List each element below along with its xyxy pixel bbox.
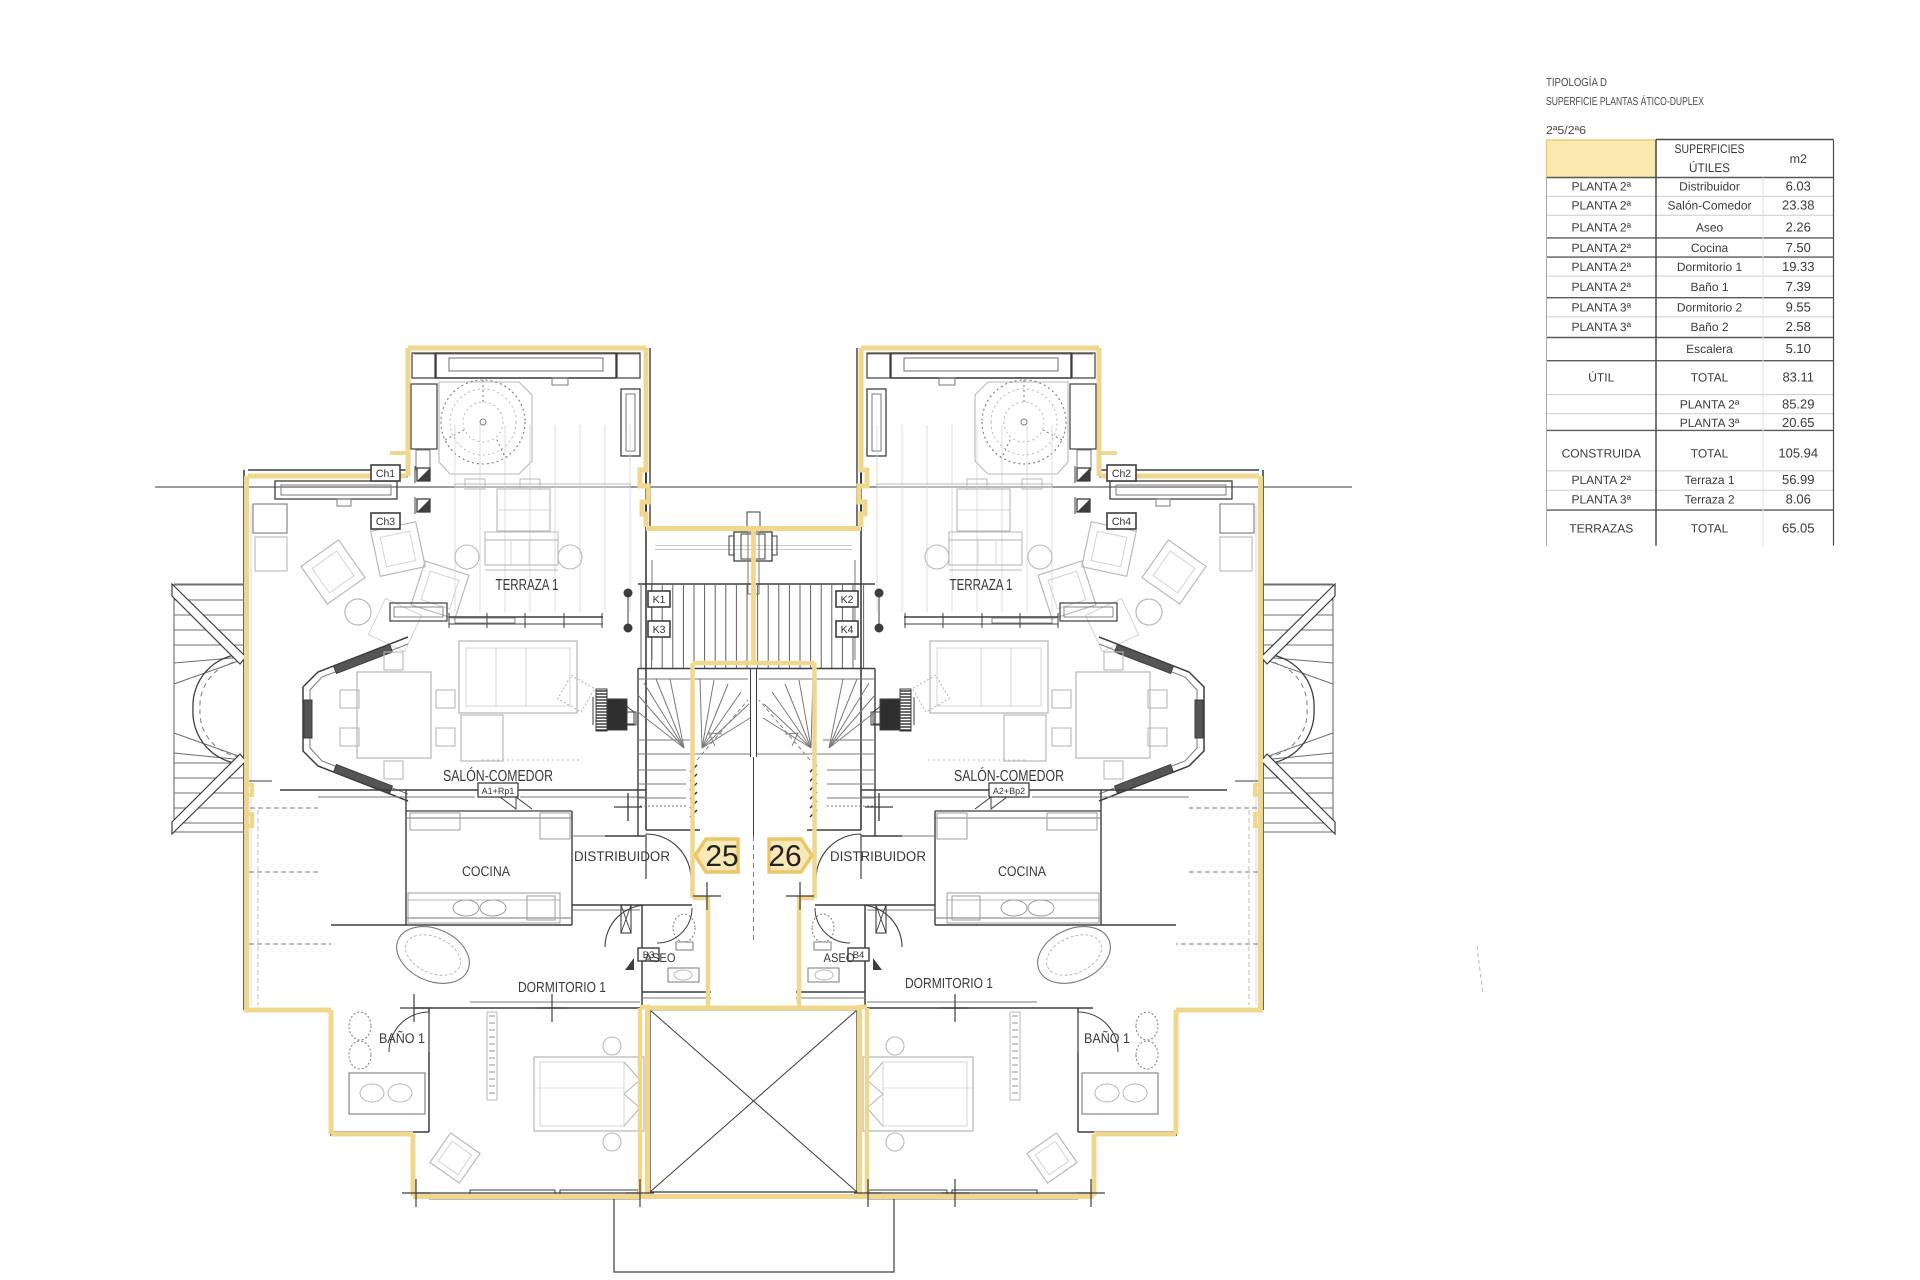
svg-text:Salón-Comedor: Salón-Comedor: [1667, 199, 1751, 213]
svg-text:A2+Bp2: A2+Bp2: [993, 786, 1025, 796]
svg-text:PLANTA 2ª: PLANTA 2ª: [1571, 260, 1631, 274]
svg-text:TOTAL: TOTAL: [1691, 370, 1729, 384]
svg-text:20.65: 20.65: [1782, 415, 1815, 430]
svg-text:ASEO: ASEO: [824, 951, 855, 965]
svg-text:PLANTA 2ª: PLANTA 2ª: [1571, 179, 1631, 193]
svg-text:Baño 1: Baño 1: [1690, 280, 1728, 294]
svg-text:56.99: 56.99: [1782, 472, 1815, 487]
svg-text:SALÓN-COMEDOR: SALÓN-COMEDOR: [443, 767, 553, 785]
svg-text:PLANTA 2ª: PLANTA 2ª: [1571, 280, 1631, 294]
svg-text:8.06: 8.06: [1786, 491, 1811, 506]
svg-text:K3: K3: [653, 624, 666, 636]
svg-text:BAÑO 1: BAÑO 1: [379, 1030, 425, 1046]
svg-text:PLANTA 3ª: PLANTA 3ª: [1571, 492, 1631, 506]
svg-text:Dormitorio 1: Dormitorio 1: [1677, 260, 1743, 274]
svg-text:Distribuidor: Distribuidor: [1679, 179, 1740, 193]
svg-text:PLANTA 3ª: PLANTA 3ª: [1571, 301, 1631, 315]
svg-text:85.29: 85.29: [1782, 397, 1815, 412]
svg-text:PLANTA 2ª: PLANTA 2ª: [1571, 473, 1631, 487]
svg-text:Baño 2: Baño 2: [1690, 320, 1728, 334]
svg-text:65.05: 65.05: [1782, 520, 1815, 535]
svg-text:Dormitorio 2: Dormitorio 2: [1677, 301, 1743, 315]
svg-text:25: 25: [705, 840, 738, 873]
svg-text:DORMITORIO 1: DORMITORIO 1: [518, 980, 606, 996]
svg-text:m2: m2: [1790, 152, 1807, 166]
svg-text:Terraza 2: Terraza 2: [1684, 492, 1734, 506]
svg-text:TERRAZA 1: TERRAZA 1: [496, 577, 559, 594]
svg-text:6.03: 6.03: [1786, 178, 1811, 193]
svg-text:PLANTA 2ª: PLANTA 2ª: [1571, 199, 1631, 213]
svg-text:COCINA: COCINA: [998, 863, 1047, 879]
svg-text:23.38: 23.38: [1782, 198, 1815, 213]
svg-text:TIPOLOGÍA D: TIPOLOGÍA D: [1546, 76, 1607, 89]
svg-text:2ª5/2ª6: 2ª5/2ª6: [1546, 125, 1586, 137]
svg-text:Cocina: Cocina: [1691, 241, 1729, 255]
svg-text:TERRAZAS: TERRAZAS: [1569, 521, 1633, 535]
svg-text:Ch1: Ch1: [376, 468, 395, 480]
svg-text:K1: K1: [653, 594, 666, 606]
svg-text:ÚTIL: ÚTIL: [1588, 370, 1614, 384]
svg-text:DORMITORIO 1: DORMITORIO 1: [905, 976, 993, 992]
svg-text:Ch2: Ch2: [1112, 468, 1131, 480]
svg-text:26: 26: [768, 840, 801, 873]
svg-text:Aseo: Aseo: [1696, 220, 1724, 234]
svg-text:K4: K4: [841, 624, 854, 636]
svg-text:A1+Rp1: A1+Rp1: [482, 786, 515, 796]
svg-text:PLANTA 3ª: PLANTA 3ª: [1571, 320, 1631, 334]
svg-text:7.50: 7.50: [1786, 240, 1811, 255]
svg-text:PLANTA 2ª: PLANTA 2ª: [1680, 398, 1740, 412]
svg-text:BAÑO 1: BAÑO 1: [1084, 1030, 1130, 1046]
svg-text:COCINA: COCINA: [462, 863, 511, 879]
svg-text:TOTAL: TOTAL: [1691, 521, 1729, 535]
svg-text:9.55: 9.55: [1786, 300, 1811, 315]
svg-text:83.11: 83.11: [1782, 369, 1814, 384]
svg-text:Terraza 1: Terraza 1: [1684, 473, 1734, 487]
svg-text:19.33: 19.33: [1782, 259, 1815, 274]
svg-text:TOTAL: TOTAL: [1691, 447, 1729, 461]
svg-text:CONSTRUIDA: CONSTRUIDA: [1562, 447, 1641, 461]
svg-text:PLANTA 3ª: PLANTA 3ª: [1680, 416, 1740, 430]
svg-text:7.39: 7.39: [1786, 279, 1811, 294]
svg-text:ÚTILES: ÚTILES: [1689, 161, 1730, 175]
svg-text:DISTRIBUIDOR: DISTRIBUIDOR: [830, 848, 926, 864]
svg-text:SUPERFICIES: SUPERFICIES: [1675, 142, 1745, 156]
svg-text:PLANTA 2ª: PLANTA 2ª: [1571, 220, 1631, 234]
svg-text:5.10: 5.10: [1786, 341, 1811, 356]
svg-text:Escalera: Escalera: [1686, 342, 1733, 356]
svg-text:DISTRIBUIDOR: DISTRIBUIDOR: [574, 848, 670, 864]
svg-text:2.58: 2.58: [1786, 319, 1811, 334]
svg-text:2.26: 2.26: [1786, 219, 1811, 234]
svg-text:Ch4: Ch4: [1112, 516, 1131, 528]
svg-text:K2: K2: [841, 594, 854, 606]
svg-text:ASEO: ASEO: [645, 951, 676, 965]
svg-text:Ch3: Ch3: [376, 516, 395, 528]
svg-text:105.94: 105.94: [1778, 446, 1818, 461]
svg-text:SALÓN-COMEDOR: SALÓN-COMEDOR: [954, 767, 1064, 785]
svg-text:PLANTA 2ª: PLANTA 2ª: [1571, 241, 1631, 255]
svg-text:TERRAZA 1: TERRAZA 1: [950, 577, 1013, 594]
svg-text:SUPERFICIE PLANTAS ÁTICO-DUPLE: SUPERFICIE PLANTAS ÁTICO-DUPLEX: [1546, 95, 1704, 108]
